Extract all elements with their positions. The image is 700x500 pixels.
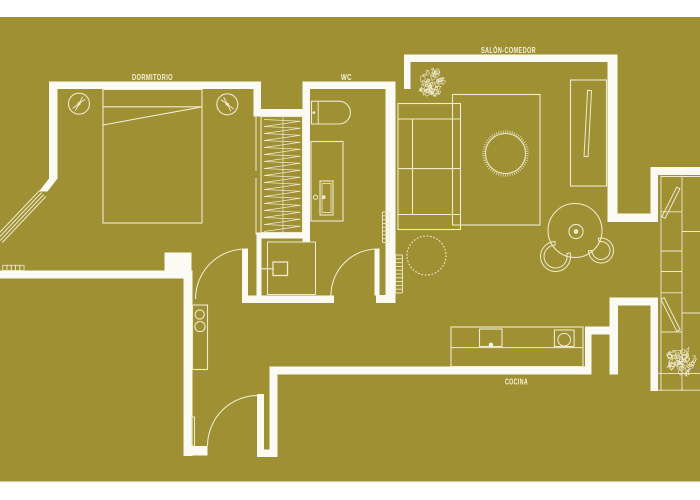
svg-text:WC: WC xyxy=(341,72,352,82)
svg-text:COCINA: COCINA xyxy=(505,377,528,387)
svg-text:DORMITORIO: DORMITORIO xyxy=(132,72,173,83)
svg-text:SALÓN-COMEDOR: SALÓN-COMEDOR xyxy=(481,45,536,56)
